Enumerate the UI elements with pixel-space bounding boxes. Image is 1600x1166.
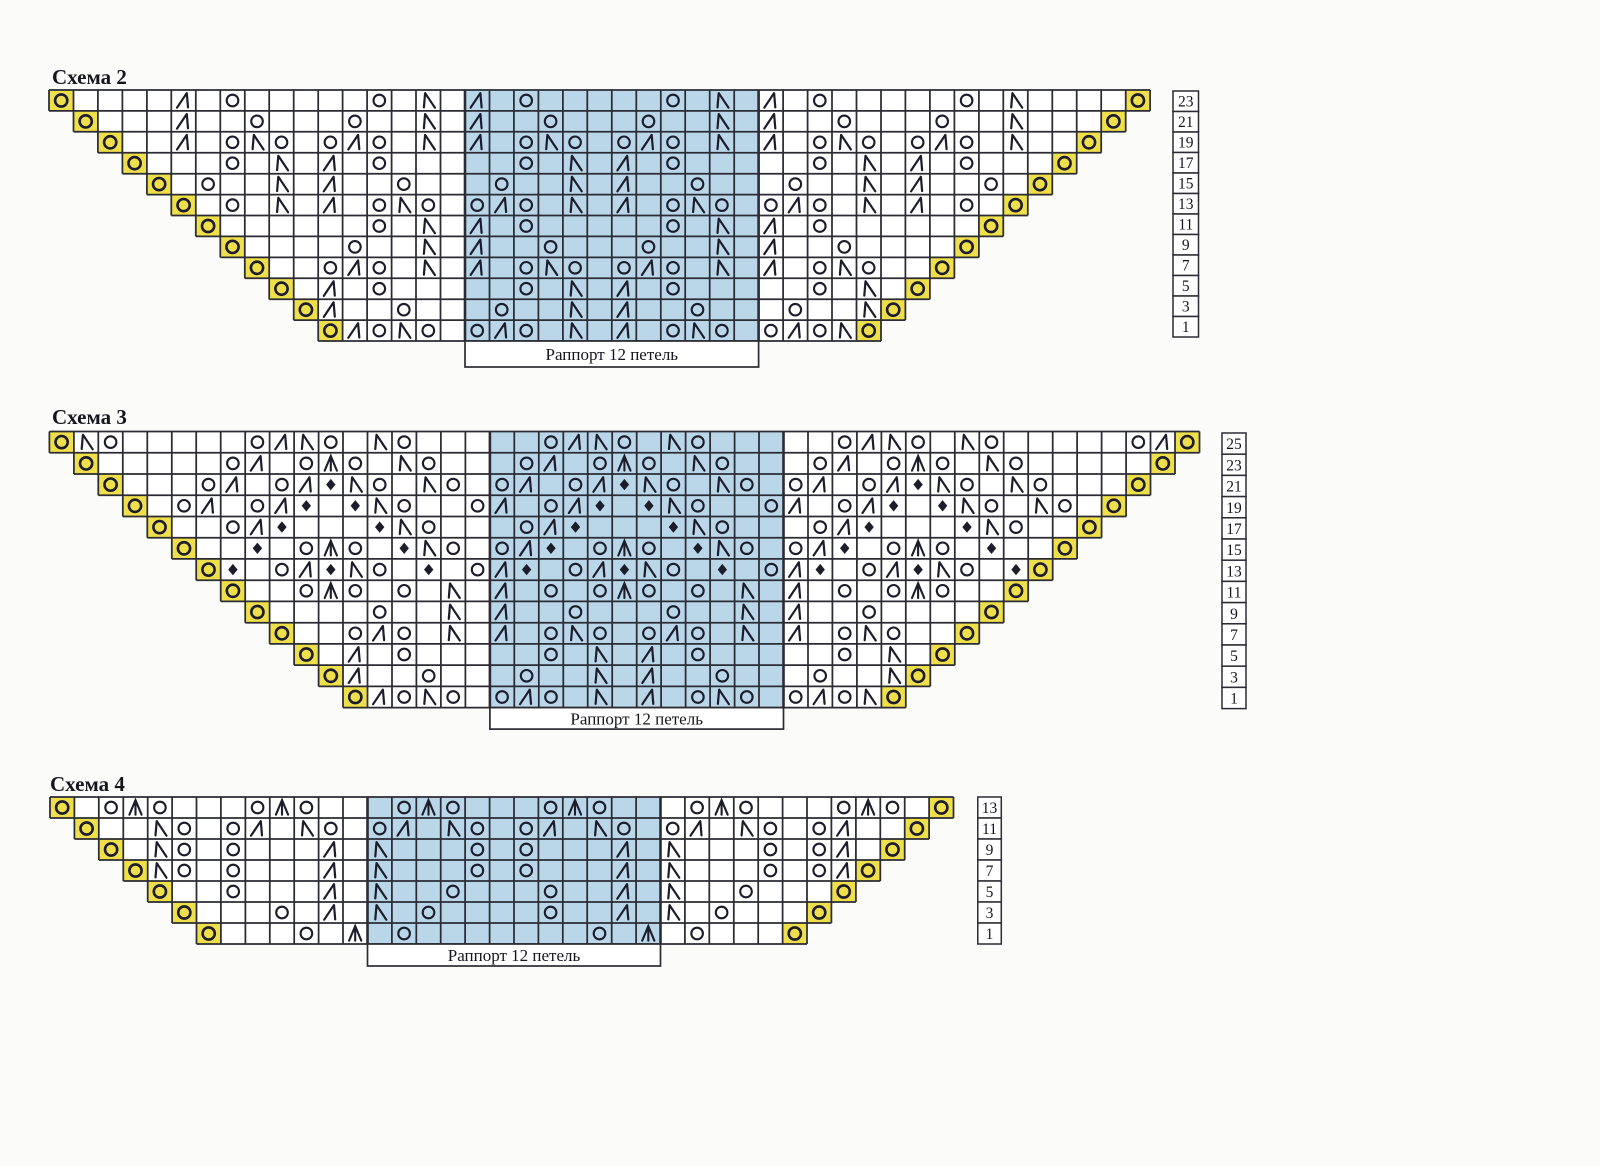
svg-text:9: 9 <box>986 842 994 859</box>
svg-text:Схема 3: Схема 3 <box>52 405 127 429</box>
svg-text:21: 21 <box>1226 479 1242 496</box>
svg-text:13: 13 <box>1178 196 1194 213</box>
svg-text:3: 3 <box>1182 299 1190 316</box>
svg-text:19: 19 <box>1226 500 1242 517</box>
svg-text:5: 5 <box>986 884 994 901</box>
svg-text:5: 5 <box>1230 648 1238 665</box>
svg-text:11: 11 <box>982 821 997 838</box>
svg-text:1: 1 <box>1182 319 1190 336</box>
svg-text:17: 17 <box>1178 155 1194 172</box>
svg-text:11: 11 <box>1178 217 1193 234</box>
svg-text:23: 23 <box>1226 457 1242 474</box>
svg-text:Схема 2: Схема 2 <box>52 65 127 89</box>
svg-text:1: 1 <box>986 926 994 943</box>
svg-text:9: 9 <box>1230 606 1238 623</box>
svg-text:23: 23 <box>1178 94 1194 111</box>
svg-text:25: 25 <box>1226 436 1242 453</box>
svg-text:21: 21 <box>1178 114 1194 131</box>
svg-text:Раппорт 12 петель: Раппорт 12 петель <box>570 709 703 728</box>
svg-text:1: 1 <box>1230 691 1238 708</box>
svg-text:Раппорт 12 петель: Раппорт 12 петель <box>448 946 581 965</box>
svg-text:Раппорт 12 петель: Раппорт 12 петель <box>546 345 679 364</box>
svg-text:13: 13 <box>1226 563 1242 580</box>
svg-text:3: 3 <box>1230 669 1238 686</box>
svg-text:7: 7 <box>1182 258 1190 275</box>
svg-text:7: 7 <box>986 863 994 880</box>
svg-text:5: 5 <box>1182 278 1190 295</box>
svg-text:15: 15 <box>1178 176 1194 193</box>
svg-text:Схема 4: Схема 4 <box>50 772 125 796</box>
svg-text:13: 13 <box>982 800 998 817</box>
svg-text:19: 19 <box>1178 135 1194 152</box>
svg-text:11: 11 <box>1227 585 1242 602</box>
svg-text:17: 17 <box>1226 521 1242 538</box>
svg-text:7: 7 <box>1230 627 1238 644</box>
svg-text:9: 9 <box>1182 237 1190 254</box>
svg-text:15: 15 <box>1226 542 1242 559</box>
svg-text:3: 3 <box>986 905 994 922</box>
